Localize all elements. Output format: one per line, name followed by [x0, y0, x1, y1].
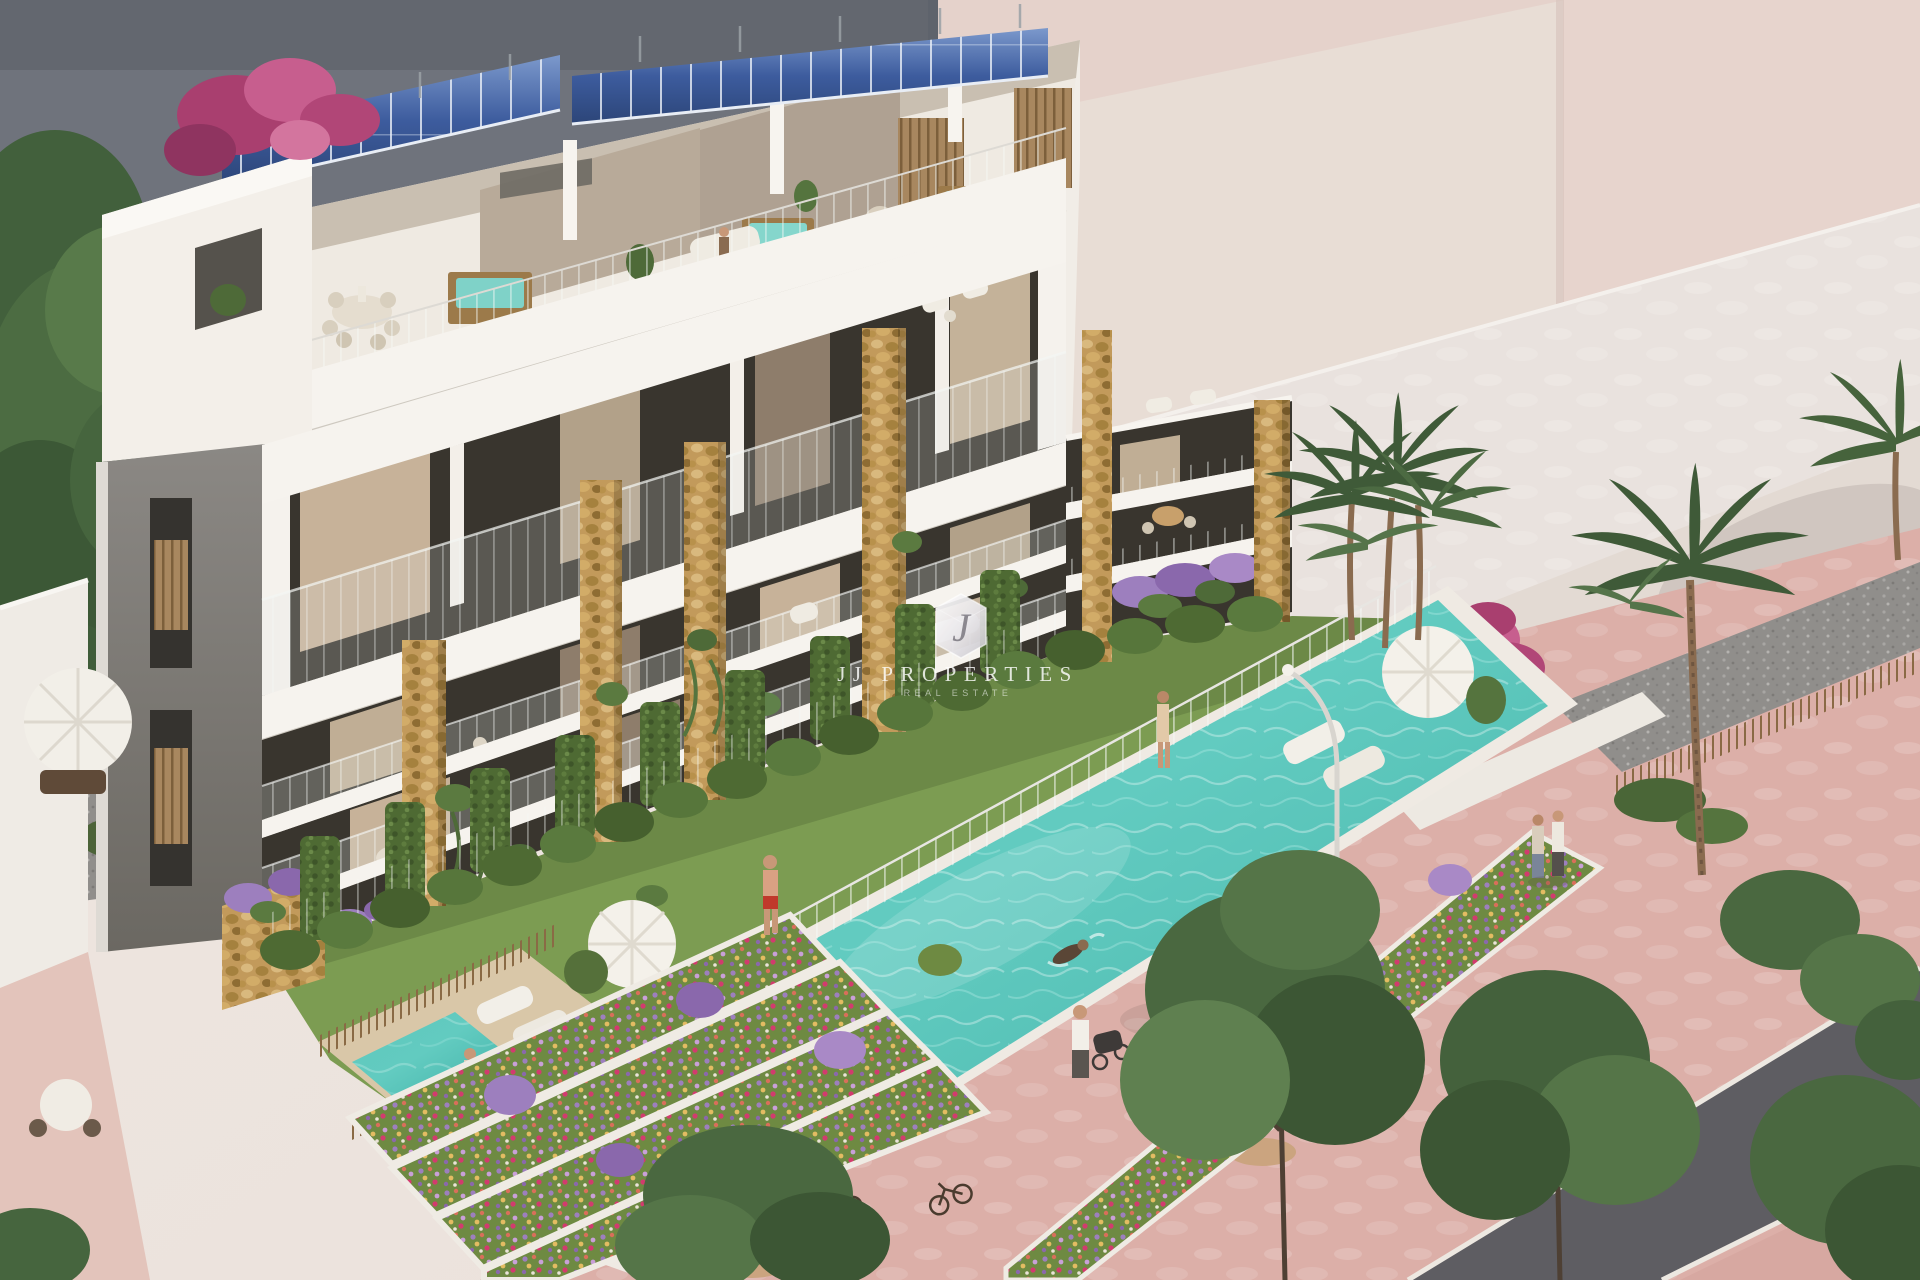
patio-table: [40, 1079, 92, 1131]
watermark-badge: J: [936, 594, 986, 658]
topiary: [564, 950, 608, 994]
watermark-brand: JJ PROPERTIES: [837, 662, 1079, 686]
watermark-monogram: J: [952, 605, 972, 650]
side-window: [150, 498, 192, 668]
planter-plant: [1466, 676, 1506, 724]
side-window: [150, 710, 192, 886]
architectural-rendering: J JJ PROPERTIES REAL ESTATE: [0, 0, 1920, 1280]
property-render-page: J JJ PROPERTIES REAL ESTATE: [0, 0, 1920, 1280]
garden-umbrella: [1382, 626, 1474, 718]
watermark-tagline: REAL ESTATE: [904, 688, 1013, 698]
